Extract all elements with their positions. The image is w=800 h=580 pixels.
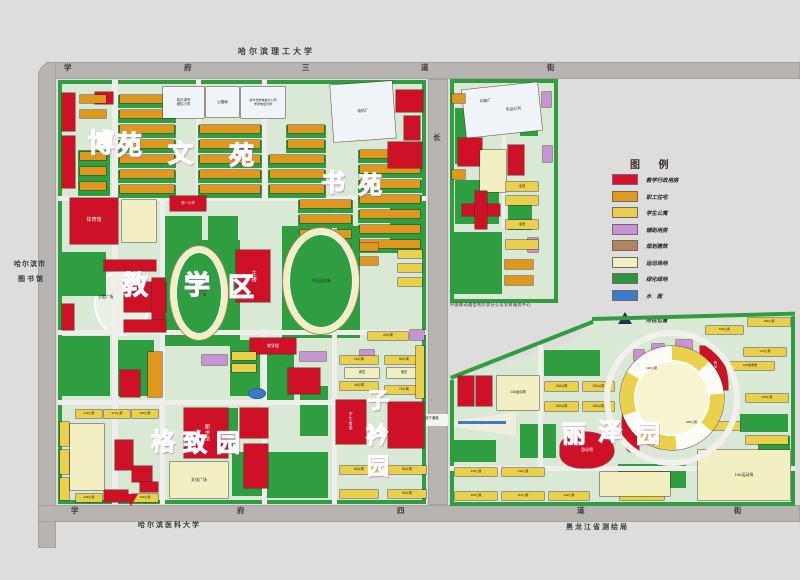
- legend-swatch: [612, 240, 638, 251]
- map-label: 26#公寓: [686, 421, 697, 424]
- legend-item: 绿化绿地: [606, 273, 776, 286]
- map-label: 主楼广场: [98, 296, 113, 300]
- building: 体育馆: [70, 198, 118, 244]
- building: 学生食堂: [336, 400, 366, 444]
- area-name-label: 文: [168, 142, 193, 167]
- area-name-label: 苑: [358, 174, 382, 198]
- green-area: [62, 252, 106, 296]
- building: [104, 260, 156, 271]
- legend-item: 运动场地: [606, 257, 776, 270]
- fountain-water: [458, 421, 506, 424]
- building: [340, 490, 378, 498]
- building: 公路局: [206, 87, 239, 117]
- legend-swatch: [612, 207, 638, 218]
- gate-arrow-icon: [124, 494, 138, 506]
- building: 14#公寓: [502, 468, 544, 476]
- building-label: 5#公寓: [399, 358, 409, 362]
- building: [398, 278, 422, 286]
- area-name-label: 丽: [562, 423, 586, 447]
- legend-swatch: [612, 273, 638, 284]
- map-label: 黑龙江省测绘局: [566, 524, 629, 531]
- building: [458, 376, 474, 406]
- pond-water: [248, 388, 266, 399]
- area-name-label: 苑: [229, 144, 254, 169]
- building-label: 37#公寓: [111, 412, 122, 415]
- building: 31#公寓: [76, 410, 102, 418]
- building: [288, 125, 324, 133]
- building: [244, 444, 268, 488]
- building: [475, 191, 487, 229]
- building: [232, 352, 256, 360]
- area-name-label: 衿: [366, 425, 388, 447]
- building: [288, 368, 320, 394]
- building-label: 23#公寓: [556, 405, 568, 409]
- building-label: 体育馆: [86, 218, 101, 224]
- building: 13#运动场: [497, 376, 539, 410]
- building: [360, 225, 420, 233]
- building: [148, 352, 162, 397]
- building: 9#公寓: [388, 490, 426, 498]
- building: [62, 93, 75, 131]
- building: 37#公寓: [104, 410, 130, 418]
- green-area: [791, 316, 795, 506]
- building: [80, 110, 106, 118]
- building-label: 2#公寓: [383, 334, 393, 338]
- building: 12#公寓: [549, 492, 589, 500]
- building: [270, 185, 324, 193]
- building: 浴池: [506, 182, 538, 191]
- building: 8#公寓: [388, 466, 426, 474]
- building: 23#公寓: [545, 402, 578, 411]
- building: 11#公寓: [502, 492, 544, 500]
- street-name-char: 府: [184, 64, 192, 72]
- building-label: 浴池: [519, 185, 525, 189]
- map-label: 哈尔滨市: [14, 261, 46, 268]
- building: [120, 170, 174, 178]
- street-name-char: 长: [433, 134, 441, 142]
- building: [300, 352, 326, 361]
- green-area: [62, 336, 110, 396]
- map-label: 地下通道: [425, 417, 439, 420]
- building: 33#公寓: [76, 494, 102, 502]
- campus-map: 图 例 教学行政用房职工住宅学生公寓辅助用房规划建筑运动场地绿化绿地水 面所在位…: [0, 0, 800, 580]
- street-name-char: 街: [734, 507, 742, 515]
- building: [120, 185, 174, 193]
- building: [360, 257, 378, 265]
- stadium-label: 2号运动场: [311, 278, 330, 284]
- building: [115, 440, 133, 470]
- building: [410, 330, 424, 340]
- building: [398, 264, 422, 272]
- building-label: 哈尔滨市电信分公司学府电话分局: [249, 99, 276, 106]
- building: [462, 82, 543, 138]
- building-label: 17#公寓: [759, 350, 770, 353]
- building-label: 16#公寓: [719, 328, 730, 331]
- area-name-label: 书: [321, 172, 345, 196]
- building: [542, 92, 551, 107]
- area-name-label: 子: [367, 390, 389, 412]
- green-area: [452, 440, 496, 462]
- building: [746, 436, 788, 444]
- building-label: 22#公寓: [593, 405, 605, 409]
- building-label: 12#公寓: [563, 494, 574, 497]
- legend-item: 水 面: [606, 290, 776, 303]
- building: [458, 138, 482, 166]
- building: [140, 482, 158, 492]
- legend-label: 水 面: [646, 292, 662, 300]
- building-label: 18#公寓: [763, 320, 774, 323]
- building: [80, 167, 106, 175]
- area-name-label: 园: [216, 432, 240, 456]
- building: [202, 355, 227, 365]
- area-name-label: 区: [228, 275, 254, 301]
- green-area: [266, 452, 328, 498]
- building: [60, 478, 69, 500]
- area-name-label: 园: [367, 456, 389, 478]
- path: [58, 400, 334, 405]
- building: [360, 243, 378, 251]
- building-label: 食堂: [401, 371, 407, 375]
- building-label: 15#运动场: [735, 473, 754, 478]
- street-name-char: 府: [237, 507, 245, 515]
- area-name-label: 苑: [116, 133, 142, 159]
- building: 2#公寓: [368, 332, 408, 340]
- legend-swatch: [612, 191, 638, 202]
- building: [80, 182, 106, 190]
- building-label: 游泳馆: [581, 448, 593, 453]
- building: [505, 276, 533, 285]
- building-label: 9#公寓: [402, 492, 412, 496]
- building-label: 电机厂: [357, 109, 369, 114]
- building: [508, 145, 524, 175]
- building: [232, 364, 256, 372]
- building: [70, 424, 104, 490]
- legend-item: 辅助用房: [606, 224, 776, 237]
- building: [388, 142, 422, 168]
- street-name-char: 三: [302, 64, 310, 72]
- legend-label: 辅助用房: [646, 226, 668, 234]
- building: [122, 200, 156, 242]
- area-name-label: 博: [88, 131, 114, 157]
- building-label: 教学楼: [267, 344, 279, 349]
- building-label: 4#公寓: [354, 384, 364, 388]
- legend-title: 图 例: [630, 156, 677, 171]
- area-name-label: 格: [151, 431, 175, 455]
- building: [476, 376, 492, 406]
- path: [160, 196, 165, 504]
- building: [506, 196, 538, 205]
- building: 21#公寓: [545, 382, 578, 391]
- legend-swatch: [612, 290, 638, 301]
- building: 16#公寓: [706, 326, 743, 334]
- building-label: 6#公寓: [354, 468, 364, 472]
- building-label: 文化广场: [191, 478, 207, 483]
- legend-swatch: [612, 224, 638, 235]
- map-label: 哈尔滨理工大学: [238, 48, 315, 56]
- building: [200, 170, 260, 178]
- building-label: 11#公寓: [518, 494, 529, 497]
- green-area: [554, 79, 558, 303]
- building: [62, 304, 74, 330]
- street-name-char: 四: [397, 507, 405, 515]
- building: [300, 200, 351, 208]
- map-label: 哈尔滨医科大学: [138, 522, 201, 529]
- building: 教学楼: [250, 338, 296, 354]
- building-label: 13#公寓: [470, 470, 481, 473]
- area-name-label: 园: [636, 423, 660, 447]
- building: [600, 472, 670, 496]
- building-label: 33#公寓: [83, 496, 94, 499]
- building: [60, 422, 69, 446]
- street-name-char: 学: [71, 507, 79, 515]
- building-label: 浴池: [519, 223, 525, 227]
- building: [388, 402, 424, 448]
- green-area: [544, 350, 600, 376]
- building: [360, 210, 420, 218]
- building: [132, 466, 152, 482]
- building: [120, 370, 140, 397]
- building: [200, 125, 260, 133]
- legend-swatch: [612, 174, 638, 185]
- map-label: 19#公寓: [646, 367, 657, 370]
- building: 浴池: [506, 220, 538, 229]
- legend-item: 职工住宅: [606, 191, 776, 204]
- green-area: [452, 232, 502, 294]
- green-area: [740, 414, 788, 432]
- building: 第一小学: [170, 196, 206, 211]
- building: 文化广场: [170, 462, 228, 498]
- building-label: 15#宿舍楼: [743, 364, 757, 367]
- building: [288, 140, 324, 148]
- building: 10#公寓: [455, 492, 497, 500]
- area-name-label: 泽: [598, 421, 622, 445]
- street-name-char: 街: [547, 64, 555, 72]
- building: [452, 94, 465, 103]
- building: [152, 278, 165, 326]
- building-label: 21#公寓: [556, 385, 568, 389]
- stadium-infield: 2号运动场: [289, 234, 353, 328]
- legend-swatch: [612, 257, 638, 268]
- building-label: 10#公寓: [470, 494, 481, 497]
- legend-item: 规划建筑: [606, 240, 776, 253]
- legend-label: 绿化绿地: [646, 275, 668, 283]
- area-name-label: 教: [122, 273, 148, 299]
- building: [416, 346, 424, 398]
- building: [62, 136, 75, 188]
- building: 25#公寓: [746, 394, 788, 402]
- building: [452, 170, 465, 179]
- building: 哈尔滨市继红小学: [163, 87, 204, 118]
- building: [543, 146, 552, 162]
- building-label: 36#公寓: [139, 412, 150, 415]
- building: [270, 155, 324, 163]
- legend-label: 规划建筑: [646, 242, 668, 250]
- building: [60, 450, 69, 474]
- building: 18#公寓: [748, 318, 790, 326]
- street-name-char: 道: [421, 64, 429, 72]
- green-area: [450, 502, 795, 506]
- building-label: 34#公寓: [139, 496, 150, 499]
- building: [505, 260, 533, 269]
- legend-item: 教学行政用房: [606, 174, 776, 187]
- map-label: 中国移动通信哈尔滨分公司学府服务中心: [450, 303, 531, 307]
- building-label: 20#公寓: [593, 385, 605, 389]
- building: [124, 320, 166, 332]
- building: [240, 408, 268, 438]
- building: 36#公寓: [132, 410, 158, 418]
- building: 哈尔滨市电信分公司学府电话分局: [241, 87, 285, 118]
- building: [300, 215, 351, 223]
- building-label: 13#运动场: [510, 391, 526, 395]
- street-name-char: 道: [577, 507, 585, 515]
- map-label: 图书馆: [18, 276, 45, 283]
- building: 13#公寓: [455, 468, 497, 476]
- legend-label: 学生公寓: [646, 209, 668, 217]
- building-label: 公路局: [217, 100, 228, 104]
- building: [200, 185, 260, 193]
- building-label: 1#公寓: [354, 358, 364, 362]
- building: 电机厂: [330, 81, 396, 142]
- legend-label: 教学行政用房: [646, 176, 678, 184]
- building: 食堂: [345, 368, 379, 378]
- building: 15#运动场: [698, 450, 790, 500]
- building-label: 第一小学: [181, 202, 195, 206]
- green-area: [208, 216, 238, 242]
- building: [396, 90, 423, 112]
- building: [404, 116, 420, 140]
- building-label: 31#公寓: [83, 412, 94, 415]
- building: 1#公寓: [340, 356, 378, 364]
- building: [480, 150, 506, 192]
- legend-label: 运动场地: [646, 259, 668, 267]
- street-name-char: 学: [64, 64, 72, 72]
- building-label: 14#公寓: [517, 470, 528, 473]
- building: [398, 250, 422, 258]
- building-label: 7#公寓: [399, 388, 409, 392]
- area-name-label: 致: [183, 432, 207, 456]
- street-left: [38, 62, 56, 548]
- legend-label: 职工住宅: [646, 193, 668, 201]
- building: [270, 170, 324, 178]
- building-label: 哈尔滨市继红小学: [177, 99, 191, 107]
- street-middle-vertical: [428, 79, 448, 505]
- building-label: 25#公寓: [761, 396, 772, 399]
- building: 17#公寓: [744, 348, 786, 356]
- legend-item: 学生公寓: [606, 207, 776, 220]
- street-bottom: [38, 505, 800, 522]
- building-label: 学生食堂: [349, 412, 353, 431]
- building-label: 食堂: [359, 371, 365, 375]
- area-name-label: 学: [184, 273, 210, 299]
- building-label: 8#公寓: [402, 468, 412, 472]
- building: [506, 240, 538, 249]
- building: [80, 95, 106, 103]
